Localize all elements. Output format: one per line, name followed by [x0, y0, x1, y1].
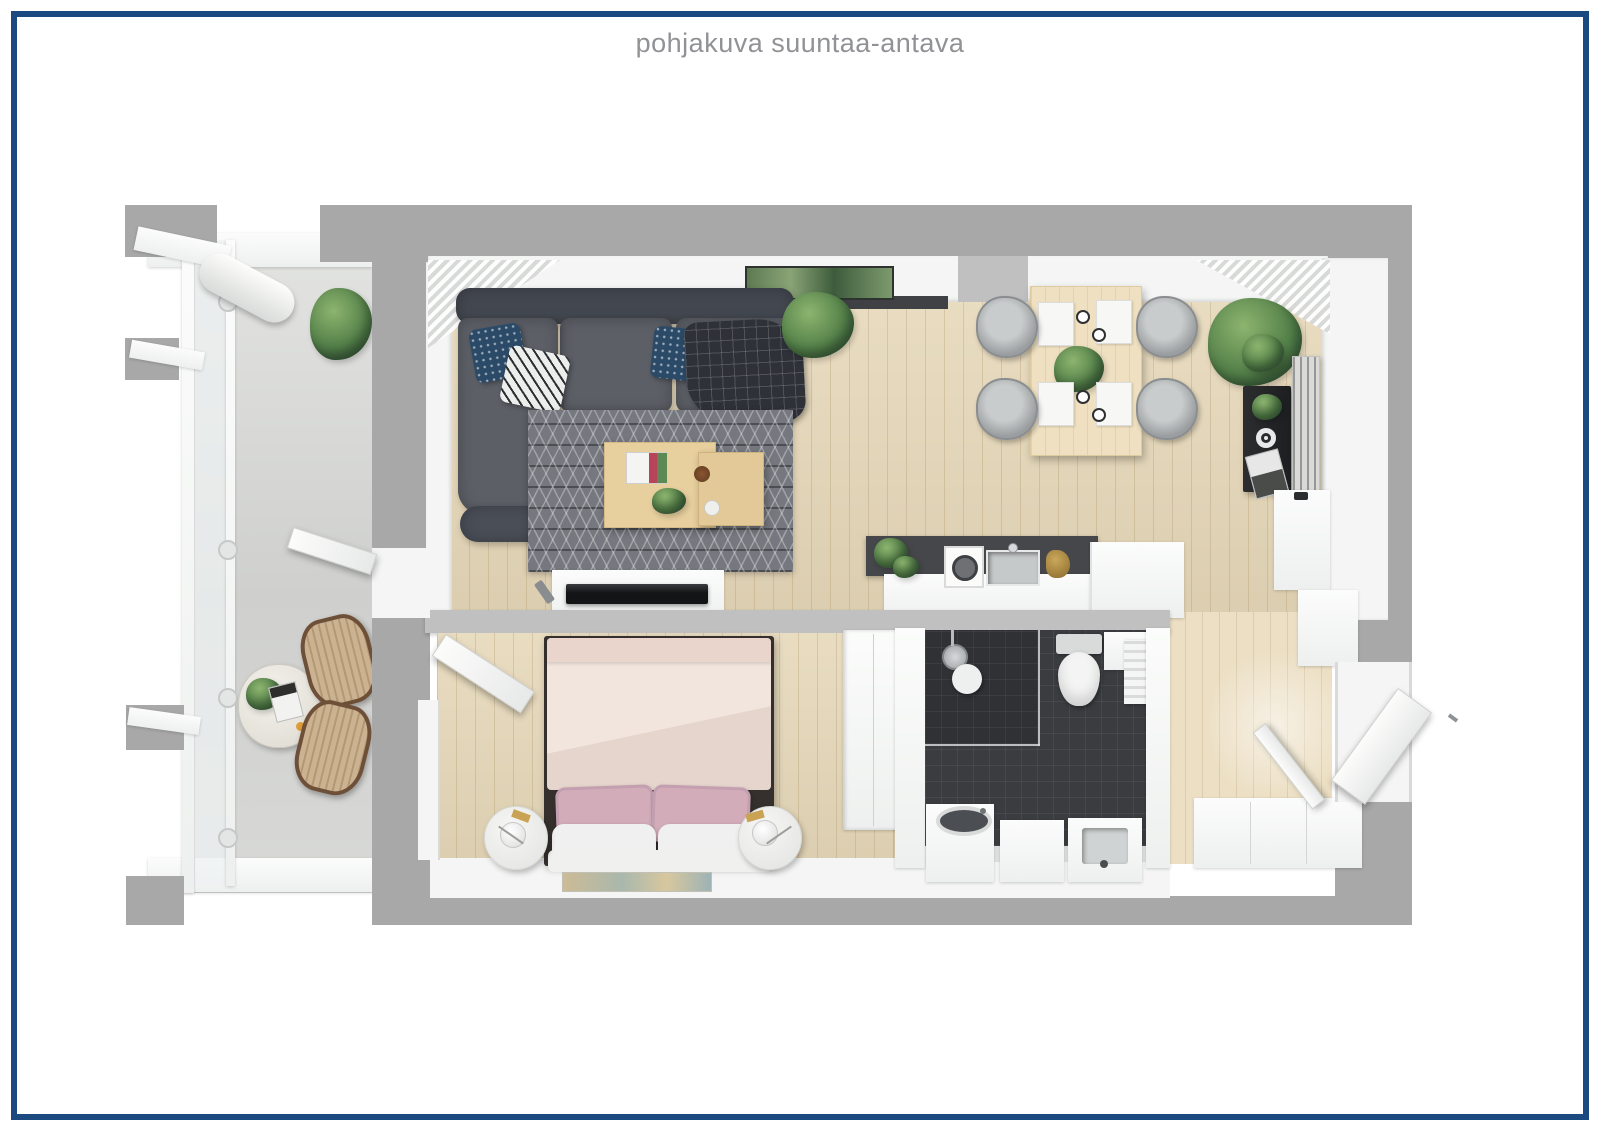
bathroom-bench [1000, 820, 1064, 882]
cup [1092, 408, 1106, 422]
hall-wardrobe-upper [1274, 490, 1330, 590]
cup [1076, 310, 1090, 324]
hall-sideboard [1194, 798, 1362, 868]
shower-area [925, 630, 1039, 744]
railing-post [218, 540, 238, 560]
console-bowl [1256, 428, 1276, 448]
brass-lamp [1046, 550, 1070, 578]
kitchen-sink [986, 550, 1040, 586]
bed-sheet-fold [548, 850, 772, 872]
hall-wardrobe-lower [1298, 590, 1358, 666]
shower-glass-vertical [1038, 630, 1040, 746]
cup [1092, 328, 1106, 342]
balcony-railing-outer [182, 233, 194, 893]
entrance-door-handle [1448, 713, 1458, 722]
dining-chair [1136, 296, 1198, 358]
faucet [1008, 543, 1018, 553]
place-setting [1038, 302, 1074, 346]
cooktop-burner [952, 555, 978, 581]
wall-bottom [372, 896, 1412, 925]
coffee-table-bowl [694, 466, 710, 482]
coffee-table-book [626, 452, 668, 484]
wall-lining-right [1322, 258, 1388, 620]
shower-glass-horizontal [925, 744, 1040, 746]
hall-keys [1294, 492, 1308, 500]
bedroom-window-left [418, 700, 440, 860]
sideboard-seam [1306, 802, 1307, 864]
balcony-railing-glass [194, 240, 227, 886]
washer-knob [980, 808, 986, 814]
wall-bathroom-hall [1146, 628, 1170, 868]
sink-basin [1082, 828, 1128, 864]
fridge [1090, 542, 1184, 618]
shower-arm [951, 630, 954, 646]
wardrobe-seam [873, 634, 874, 826]
railing-post [218, 828, 238, 848]
dining-chair [1136, 378, 1198, 440]
birch-poster [1292, 356, 1320, 506]
floor-plan-page: pohjakuva suuntaa-antava [0, 0, 1600, 1131]
wall-stub [126, 876, 184, 925]
railing-post [218, 688, 238, 708]
wall-bedroom-bathroom [895, 628, 925, 868]
sink-faucet [1100, 860, 1108, 868]
toilet-tank [1056, 634, 1102, 654]
sofa-pillow-zigzag [499, 344, 572, 414]
cup [1076, 390, 1090, 404]
shower-stool [952, 664, 982, 694]
bed-duvet-fold [547, 638, 771, 662]
floor-plan [0, 0, 1600, 1131]
place-setting [1038, 382, 1074, 426]
coffee-table-cup [704, 500, 720, 516]
balcony-railing-inner [226, 240, 235, 886]
balcony-door-opening [372, 548, 430, 618]
wall-top [320, 205, 1412, 262]
tv-screen [566, 584, 708, 604]
floor-artwork [562, 872, 712, 892]
wall-right-upper [1385, 205, 1412, 540]
dining-chair [976, 378, 1038, 440]
dining-chair [976, 296, 1038, 358]
wall-gap-top [958, 256, 1028, 302]
sideboard-seam [1250, 802, 1251, 864]
